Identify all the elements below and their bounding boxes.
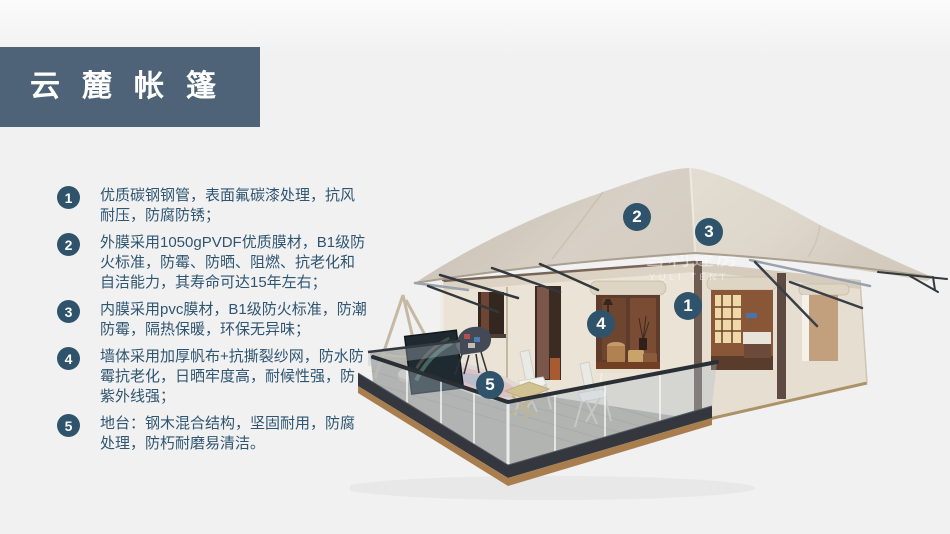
feature-item: 5 地台：钢木混合结构，坚固耐用，防腐处理，防朽耐磨易清洁。 [57, 414, 369, 454]
feature-item: 3 内膜采用pvc膜材，B1级防火标准，防潮防霉，隔热保暖，环保无异味； [57, 300, 369, 340]
feature-text: 外膜采用1050gPVDF优质膜材，B1级防火标准，防霉、防晒、阻燃、抗老化和自… [100, 233, 368, 293]
callout-marker-2: 2 [623, 203, 651, 231]
feature-item: 1 优质碳钢钢管，表面氟碳漆处理，抗风耐压，防腐防锈； [57, 186, 369, 226]
feature-number-badge: 3 [57, 300, 80, 323]
callout-marker-1: 1 [674, 292, 702, 320]
tent-drawing: 雪利篷房 YULI TENT [350, 140, 950, 534]
ground-shadow [350, 476, 755, 500]
feature-item: 2 外膜采用1050gPVDF优质膜材，B1级防火标准，防霉、防晒、阻燃、抗老化… [57, 233, 369, 293]
watermark-en: YULI TENT [649, 272, 729, 283]
feature-number-badge: 4 [57, 347, 80, 370]
title-block: 云麓帐篷 [0, 47, 260, 127]
feature-number-badge: 2 [57, 233, 80, 256]
roller-shade [590, 281, 666, 295]
feature-number-badge: 1 [57, 186, 80, 209]
feature-item: 4 墙体采用加厚帆布+抗撕裂纱网，防水防霉抗老化，日晒牢度高，耐候性强，防紫外线… [57, 347, 369, 407]
callout-marker-5: 5 [476, 371, 504, 399]
callout-marker-3: 3 [695, 218, 723, 246]
feature-text: 内膜采用pvc膜材，B1级防火标准，防潮防霉，隔热保暖，环保无异味； [100, 300, 368, 340]
tent-illustration: 雪利篷房 YULI TENT [350, 140, 950, 534]
feature-text: 墙体采用加厚帆布+抗撕裂纱网，防水防霉抗老化，日晒牢度高，耐候性强，防紫外线强； [100, 347, 368, 407]
feature-text: 优质碳钢钢管，表面氟碳漆处理，抗风耐压，防腐防锈； [100, 186, 368, 226]
feature-text: 地台：钢木混合结构，坚固耐用，防腐处理，防朽耐磨易清洁。 [100, 414, 368, 454]
right-wall [695, 262, 867, 421]
page-title: 云麓帐篷 [0, 47, 260, 127]
callout-marker-4: 4 [587, 310, 615, 338]
feature-number-badge: 5 [57, 414, 80, 437]
slide-canvas: 云麓帐篷 1 优质碳钢钢管，表面氟碳漆处理，抗风耐压，防腐防锈； 2 外膜采用1… [0, 0, 950, 534]
feature-list: 1 优质碳钢钢管，表面氟碳漆处理，抗风耐压，防腐防锈； 2 外膜采用1050gP… [57, 186, 369, 461]
